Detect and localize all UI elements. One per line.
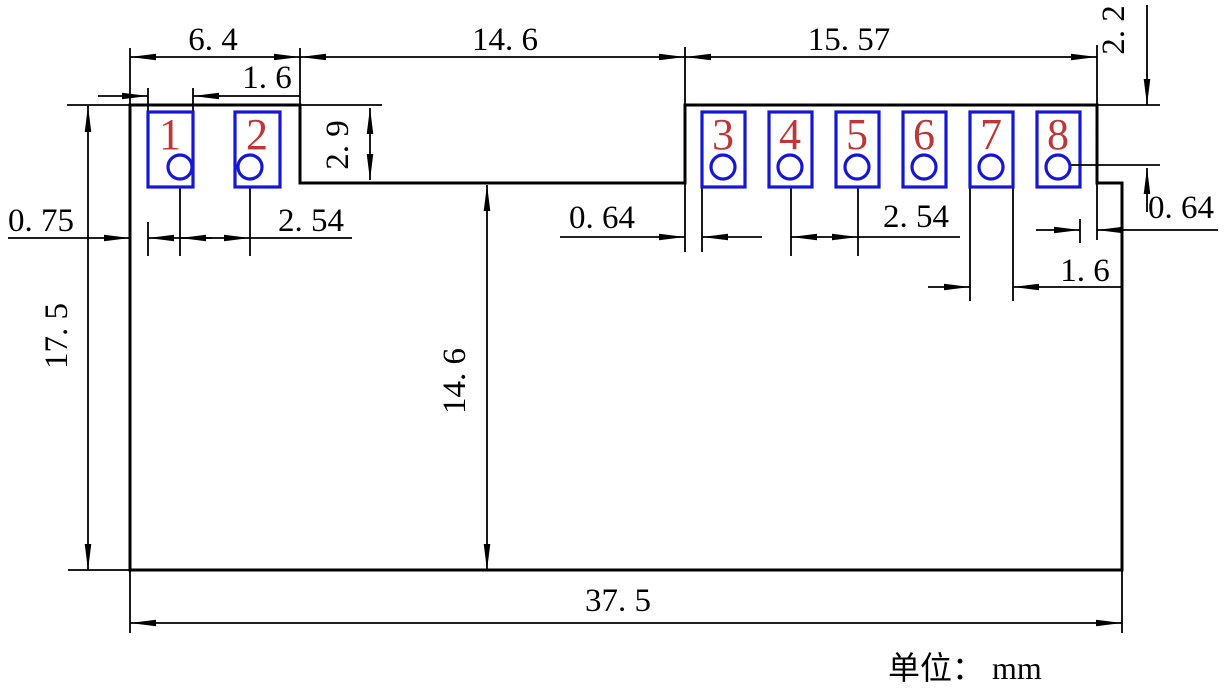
dim-body-height: 14. 6 (437, 185, 487, 570)
pad-6-hole (912, 155, 936, 179)
pad-1-hole (168, 155, 192, 179)
dim-left-tab-width: 6. 4 (130, 22, 300, 58)
dim-total-width-label: 37. 5 (585, 583, 651, 619)
pad-6-number: 6 (913, 110, 935, 159)
dim-pad1-width: 1. 6 (98, 60, 300, 96)
drawing-canvas: 1 2 3 4 5 6 7 8 (0, 0, 1225, 692)
dim-left-edge-to-pad1: 0. 75 (8, 203, 212, 239)
dim-edge-to-pad3: 0. 64 (560, 200, 762, 237)
pad-3-hole (711, 155, 735, 179)
dim-right-tab-width-label: 15. 57 (808, 22, 891, 58)
dim-right-tab-width: 15. 57 (685, 22, 1097, 58)
dim-pin-row-offset: 2. 2 (1096, 5, 1147, 212)
dim-pad8-to-edge-label: 0. 64 (1148, 190, 1214, 226)
pad-7-number: 7 (980, 110, 1002, 159)
dim-pad8-to-edge: 0. 64 (1036, 190, 1218, 230)
dim-body-height-label: 14. 6 (437, 348, 473, 414)
units-note: 单位： mm (888, 650, 1042, 686)
pad-3-number: 3 (712, 110, 734, 159)
pad-8-hole (1046, 155, 1070, 179)
dimension-drawing: 1 2 3 4 5 6 7 8 (0, 0, 1225, 692)
pad-2-hole (238, 155, 262, 179)
dim-left-tab-width-label: 6. 4 (188, 22, 238, 58)
pad-1-number: 1 (159, 110, 181, 159)
dim-notch-width: 14. 6 (300, 22, 685, 58)
pad-row: 1 2 3 4 5 6 7 8 (148, 110, 1080, 187)
dim-total-height-label: 17. 5 (39, 303, 75, 369)
dim-left-pitch-label: 2. 54 (278, 203, 344, 239)
pad-5-hole (845, 155, 869, 179)
dim-total-height: 17. 5 (39, 106, 88, 570)
pad-2-number: 2 (246, 110, 268, 159)
pad-8-number: 8 (1047, 110, 1069, 159)
dim-pad1-width-label: 1. 6 (242, 60, 292, 96)
dim-right-pitch: 2. 54 (791, 199, 960, 237)
pad-5-number: 5 (846, 110, 868, 159)
pad-4-number: 4 (779, 110, 801, 159)
pad-7-hole (979, 155, 1003, 179)
dim-total-width: 37. 5 (130, 583, 1122, 623)
dim-pin-row-offset-label: 2. 2 (1096, 5, 1132, 55)
dim-left-edge-to-pad1-label: 0. 75 (8, 203, 74, 239)
dim-pad7-width: 1. 6 (928, 253, 1122, 289)
pad-4-hole (778, 155, 802, 179)
dim-right-pitch-label: 2. 54 (883, 199, 949, 235)
dim-notch-width-label: 14. 6 (472, 22, 538, 58)
dim-left-pitch: 2. 54 (180, 203, 352, 239)
dim-tab-height-label: 2. 9 (320, 120, 356, 170)
dim-tab-height: 2. 9 (320, 108, 370, 180)
dim-pad7-width-label: 1. 6 (1060, 253, 1110, 289)
dim-edge-to-pad3-label: 0. 64 (569, 200, 635, 236)
